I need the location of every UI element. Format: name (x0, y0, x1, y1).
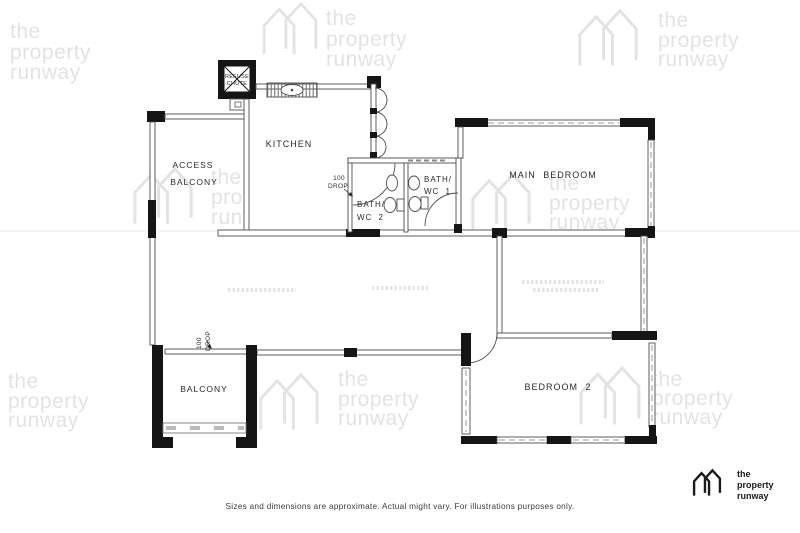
watermark-text: runway (652, 406, 723, 429)
wall-segment (370, 132, 377, 138)
wall (458, 127, 463, 158)
toilet (384, 198, 396, 213)
wall-column (648, 226, 655, 238)
wall (404, 163, 408, 232)
wall (236, 437, 257, 448)
watermark-top-center: the property runway (264, 4, 407, 71)
wall-segment (370, 108, 377, 114)
wall-segment (612, 331, 657, 340)
watermark-top-right: the property runway (580, 9, 739, 71)
watermark-text: runway (10, 61, 81, 84)
wall-segment (344, 348, 357, 357)
bath-wc1-label: WC 1 (424, 187, 451, 196)
toilet (409, 197, 421, 212)
access-balcony-label: ACCESS (173, 160, 214, 170)
brand-footer: the property runway (694, 469, 773, 501)
toilet-tank (397, 199, 404, 211)
wall-segment (547, 436, 571, 444)
bath-wc1-label: BATH/ (424, 175, 452, 184)
wall (165, 114, 245, 119)
floor-plan-page: the property runway the property runway … (0, 0, 800, 533)
brand-name: the (737, 469, 751, 479)
watermark-bottom-left: the property runway (8, 370, 89, 432)
watermark-logo-icon (581, 368, 639, 424)
wall-segment (370, 152, 377, 158)
wall-segment (461, 436, 497, 444)
wall (246, 345, 257, 445)
wall-segment (455, 118, 488, 127)
watermark-text: the (326, 7, 357, 30)
wall-segment (454, 224, 462, 233)
wall-column (147, 111, 165, 122)
wall (497, 236, 502, 333)
wall-segment (625, 436, 657, 444)
watermark-text: runway (658, 48, 729, 71)
watermark-text: runway (338, 407, 409, 430)
drop-note-text: DROP (328, 183, 348, 190)
watermark-logo-icon (473, 175, 529, 230)
watermark-text: the (10, 20, 41, 43)
wall (152, 437, 173, 448)
watermark-logo-icon (580, 11, 636, 66)
kitchen-label: KITCHEN (266, 139, 313, 149)
wall-segment (148, 200, 156, 238)
door-swing-arc (467, 333, 497, 363)
watermark-text: runway (326, 48, 397, 71)
bath-wc2-label: WC 2 (357, 213, 384, 222)
wall (244, 99, 249, 232)
toilet-tank (421, 197, 428, 209)
watermark-bottom-right: the property runway (581, 368, 733, 429)
refuse-chute-label: CHUTE (227, 81, 247, 87)
disclaimer-text: Sizes and dimensions are approximate. Ac… (225, 502, 574, 511)
wall (371, 84, 376, 158)
balcony-label: BALCONY (180, 384, 228, 394)
refuse-chute-label: REFUSE (225, 74, 249, 80)
wall-column (648, 118, 655, 140)
wall-segment (461, 333, 471, 366)
wall (152, 345, 163, 445)
bedroom2-label: BEDROOM 2 (524, 382, 591, 392)
watermark-text: runway (8, 409, 79, 432)
drop-note-balcony: 100 DROP (196, 331, 212, 351)
main-bedroom-label: MAIN BEDROOM (509, 170, 597, 180)
faded-label-artifact (228, 282, 604, 290)
basin (409, 176, 420, 190)
access-balcony-label: BALCONY (170, 177, 218, 187)
floor-plan-canvas: the property runway the property runway … (0, 0, 800, 533)
watermark-bottom-center: the property runway (261, 368, 419, 430)
wall (257, 350, 462, 355)
watermark-top-left: the property runway (10, 20, 91, 84)
basin (387, 175, 398, 191)
brand-name: property (737, 480, 774, 490)
watermark-mid-right: the property runway (473, 172, 630, 234)
brand-name: runway (737, 491, 769, 501)
watermark-logo-icon (264, 4, 316, 54)
watermark-logo-icon (261, 375, 317, 430)
wall (497, 333, 612, 338)
wall (218, 230, 650, 236)
drop-note-text: 100 (333, 175, 345, 182)
sink-drain (291, 89, 294, 92)
drop-note-text: 100 (196, 337, 203, 349)
bath-wc2-label: BATH/ (357, 200, 385, 209)
brand-logo-icon (694, 470, 720, 495)
wall (456, 158, 461, 232)
